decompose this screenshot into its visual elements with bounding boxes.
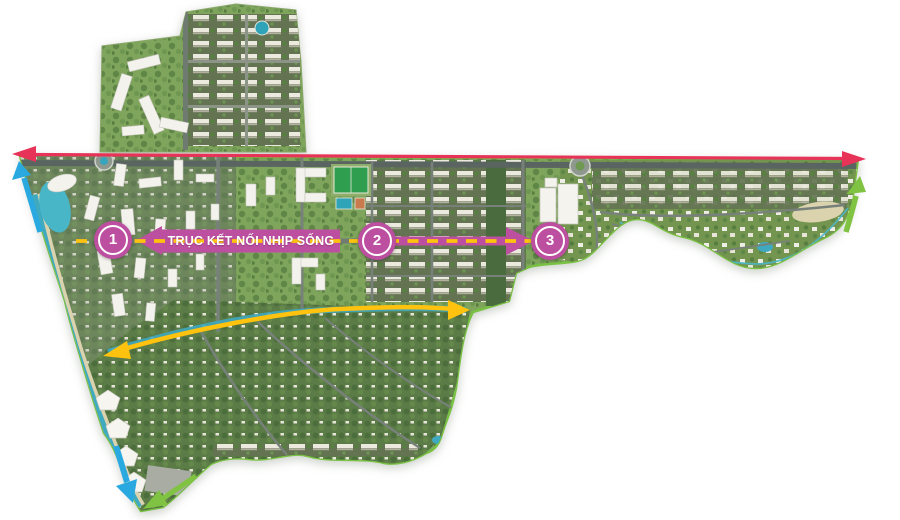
axis-marker-2[interactable]: 2 [358,222,396,260]
map-annotations [0,0,900,520]
masterplan-screenshot: TRỤC KẾT NỐI NHỊP SỐNG 1 2 3 [0,0,900,520]
axis-marker-3[interactable]: 3 [531,222,569,260]
red-main-road-arrow [12,146,866,167]
river-arrow-bottom-icon [116,446,137,503]
axis-marker-1[interactable]: 1 [94,221,132,259]
axis-marker-3-label: 3 [535,226,565,256]
greenway-arrow-bottom-icon [143,476,196,509]
yellow-axis-arrow [103,300,470,359]
axis-marker-2-label: 2 [362,226,392,256]
greenway-arrow-right-icon [846,176,866,232]
river-arrow-upper-left-icon [12,161,40,232]
axis-marker-1-label: 1 [98,225,128,255]
